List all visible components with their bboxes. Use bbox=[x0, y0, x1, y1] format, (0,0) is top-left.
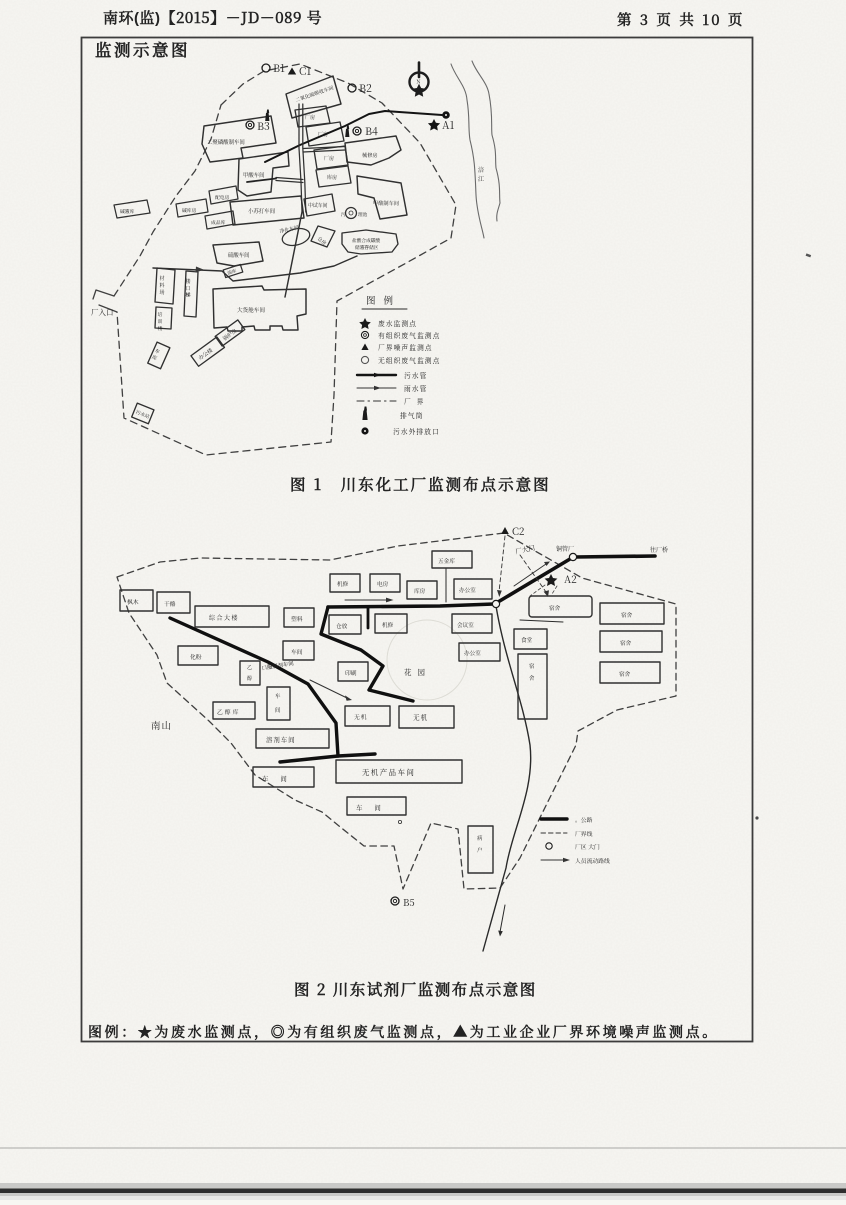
svg-text:人员流动路线: 人员流动路线 bbox=[575, 856, 610, 865]
svg-text:病: 病 bbox=[477, 834, 483, 842]
svg-text:二聚磷酸制车间: 二聚磷酸制车间 bbox=[207, 138, 245, 146]
svg-text:乙: 乙 bbox=[247, 664, 252, 671]
svg-text:花园: 花园 bbox=[404, 667, 431, 678]
svg-text:厂区 大门: 厂区 大门 bbox=[575, 842, 600, 851]
svg-text:B1: B1 bbox=[273, 61, 285, 76]
svg-text:厂界线: 厂界线 bbox=[575, 829, 593, 838]
svg-text:车间: 车间 bbox=[291, 647, 303, 656]
svg-text:有组织废气监测点: 有组织废气监测点 bbox=[378, 330, 440, 340]
svg-text:理池: 理池 bbox=[358, 211, 368, 218]
svg-text:楼口梯: 楼口梯 bbox=[184, 278, 192, 298]
svg-text:户: 户 bbox=[477, 846, 482, 854]
svg-text:C1: C1 bbox=[299, 64, 311, 79]
svg-text:舍: 舍 bbox=[529, 674, 535, 682]
svg-text:图 2 川东试剂厂监测布点示意图: 图 2 川东试剂厂监测布点示意图 bbox=[294, 978, 537, 1000]
svg-text:硫酸车间: 硫酸车间 bbox=[228, 251, 250, 259]
svg-text:甲酸车间: 甲酸车间 bbox=[243, 171, 265, 179]
svg-text:无机: 无机 bbox=[354, 712, 368, 721]
svg-text:宿: 宿 bbox=[529, 662, 535, 670]
svg-text:污水外排放口: 污水外排放口 bbox=[393, 426, 440, 436]
svg-text:食堂: 食堂 bbox=[521, 636, 533, 644]
svg-text:无组织废气监测点: 无组织废气监测点 bbox=[378, 355, 440, 365]
svg-text:车间: 车间 bbox=[356, 803, 393, 812]
svg-text:B3: B3 bbox=[257, 119, 270, 134]
svg-text:B2: B2 bbox=[359, 81, 372, 96]
svg-text:盐酸合成碳酸: 盐酸合成碳酸 bbox=[352, 237, 380, 244]
svg-text:机修: 机修 bbox=[382, 621, 394, 629]
svg-text:械修房: 械修房 bbox=[362, 151, 378, 159]
svg-text:污水管: 污水管 bbox=[404, 370, 427, 380]
svg-text:化粉: 化粉 bbox=[190, 652, 202, 661]
svg-text:。公路: 。公路 bbox=[575, 815, 593, 824]
svg-text:车间: 车间 bbox=[262, 774, 299, 783]
svg-text:溶剂车间: 溶剂车间 bbox=[266, 735, 296, 744]
svg-text:无机产品车间: 无机产品车间 bbox=[362, 767, 415, 778]
svg-text:往厂桥: 往厂桥 bbox=[650, 545, 668, 554]
svg-text:电房: 电房 bbox=[377, 580, 389, 588]
svg-text:间: 间 bbox=[275, 706, 281, 714]
svg-text:印刷: 印刷 bbox=[345, 668, 357, 677]
svg-text:图例：★为废水监测点，◎为有组织废气监测点，▲为工业企业厂界: 图例：★为废水监测点，◎为有组织废气监测点，▲为工业企业厂界环境噪声监测点。 bbox=[88, 1022, 719, 1042]
svg-text:A1: A1 bbox=[442, 118, 455, 133]
svg-text:C2: C2 bbox=[512, 523, 525, 538]
svg-text:排气筒: 排气筒 bbox=[400, 410, 423, 420]
svg-text:大货舱车间: 大货舱车间 bbox=[237, 306, 265, 314]
svg-text:干酪: 干酪 bbox=[164, 599, 176, 608]
svg-text:N: N bbox=[416, 78, 421, 86]
svg-text:枫木: 枫木 bbox=[127, 597, 139, 606]
svg-text:中试车间: 中试车间 bbox=[308, 202, 328, 209]
svg-text:厂房: 厂房 bbox=[305, 114, 315, 121]
svg-text:南环(监)【2015】－JD－089 号: 南环(监)【2015】－JD－089 号 bbox=[103, 7, 322, 28]
svg-text:培训楼: 培训楼 bbox=[157, 311, 164, 332]
svg-text:办公室: 办公室 bbox=[464, 649, 481, 657]
svg-text:碱液库: 碱液库 bbox=[120, 208, 135, 215]
svg-text:材料场: 材料场 bbox=[159, 275, 166, 296]
svg-text:废水监测点: 废水监测点 bbox=[378, 318, 417, 328]
svg-text:图例: 图例 bbox=[366, 293, 401, 307]
svg-text:乙醇库: 乙醇库 bbox=[217, 707, 240, 716]
svg-text:库房: 库房 bbox=[414, 587, 426, 595]
svg-text:第 3 页 共 10 页: 第 3 页 共 10 页 bbox=[617, 9, 745, 30]
svg-text:办公室: 办公室 bbox=[459, 586, 476, 594]
svg-text:南山: 南山 bbox=[151, 718, 172, 732]
svg-text:仓放: 仓放 bbox=[336, 622, 348, 630]
svg-text:小苏打车间: 小苏打车间 bbox=[248, 207, 276, 215]
svg-text:污: 污 bbox=[341, 211, 346, 218]
svg-text:B4: B4 bbox=[365, 124, 378, 139]
svg-text:配电房: 配电房 bbox=[215, 194, 230, 201]
svg-text:A2: A2 bbox=[564, 571, 577, 586]
svg-text:厂界噪声监测点: 厂界噪声监测点 bbox=[378, 342, 433, 352]
svg-text:厂 界: 厂 界 bbox=[404, 396, 425, 406]
svg-text:库房: 库房 bbox=[327, 174, 337, 181]
svg-text:铜管厂: 铜管厂 bbox=[556, 544, 574, 553]
svg-text:监测示意图: 监测示意图 bbox=[95, 37, 190, 61]
svg-text:宿舍: 宿舍 bbox=[620, 639, 632, 647]
svg-text:储液存储区: 储液存储区 bbox=[355, 244, 379, 251]
svg-text:无机: 无机 bbox=[413, 712, 428, 722]
svg-text:五金库: 五金库 bbox=[438, 557, 455, 565]
svg-text:车: 车 bbox=[275, 692, 281, 700]
svg-text:碱库房: 碱库房 bbox=[182, 207, 197, 214]
svg-text:宿舍: 宿舍 bbox=[621, 611, 633, 619]
svg-text:会议室: 会议室 bbox=[457, 621, 474, 629]
svg-text:宿舍: 宿舍 bbox=[619, 670, 631, 678]
svg-text:雨水管: 雨水管 bbox=[404, 383, 427, 393]
svg-text:甲酸制车间: 甲酸制车间 bbox=[373, 199, 399, 207]
svg-text:综合大楼: 综合大楼 bbox=[209, 613, 239, 622]
svg-text:机修: 机修 bbox=[337, 580, 349, 588]
svg-text:厂房: 厂房 bbox=[324, 155, 334, 162]
svg-text:成品库: 成品库 bbox=[211, 219, 226, 226]
svg-text:醇: 醇 bbox=[247, 675, 252, 682]
svg-text:厂入口: 厂入口 bbox=[91, 307, 114, 318]
svg-text:图 1 川东化工厂监测布点示意图: 图 1 川东化工厂监测布点示意图 bbox=[290, 473, 551, 495]
svg-text:涪江: 涪江 bbox=[477, 165, 486, 183]
svg-text:宿舍: 宿舍 bbox=[549, 604, 561, 612]
svg-text:B5: B5 bbox=[403, 895, 415, 909]
svg-text:塑料: 塑料 bbox=[291, 614, 303, 623]
